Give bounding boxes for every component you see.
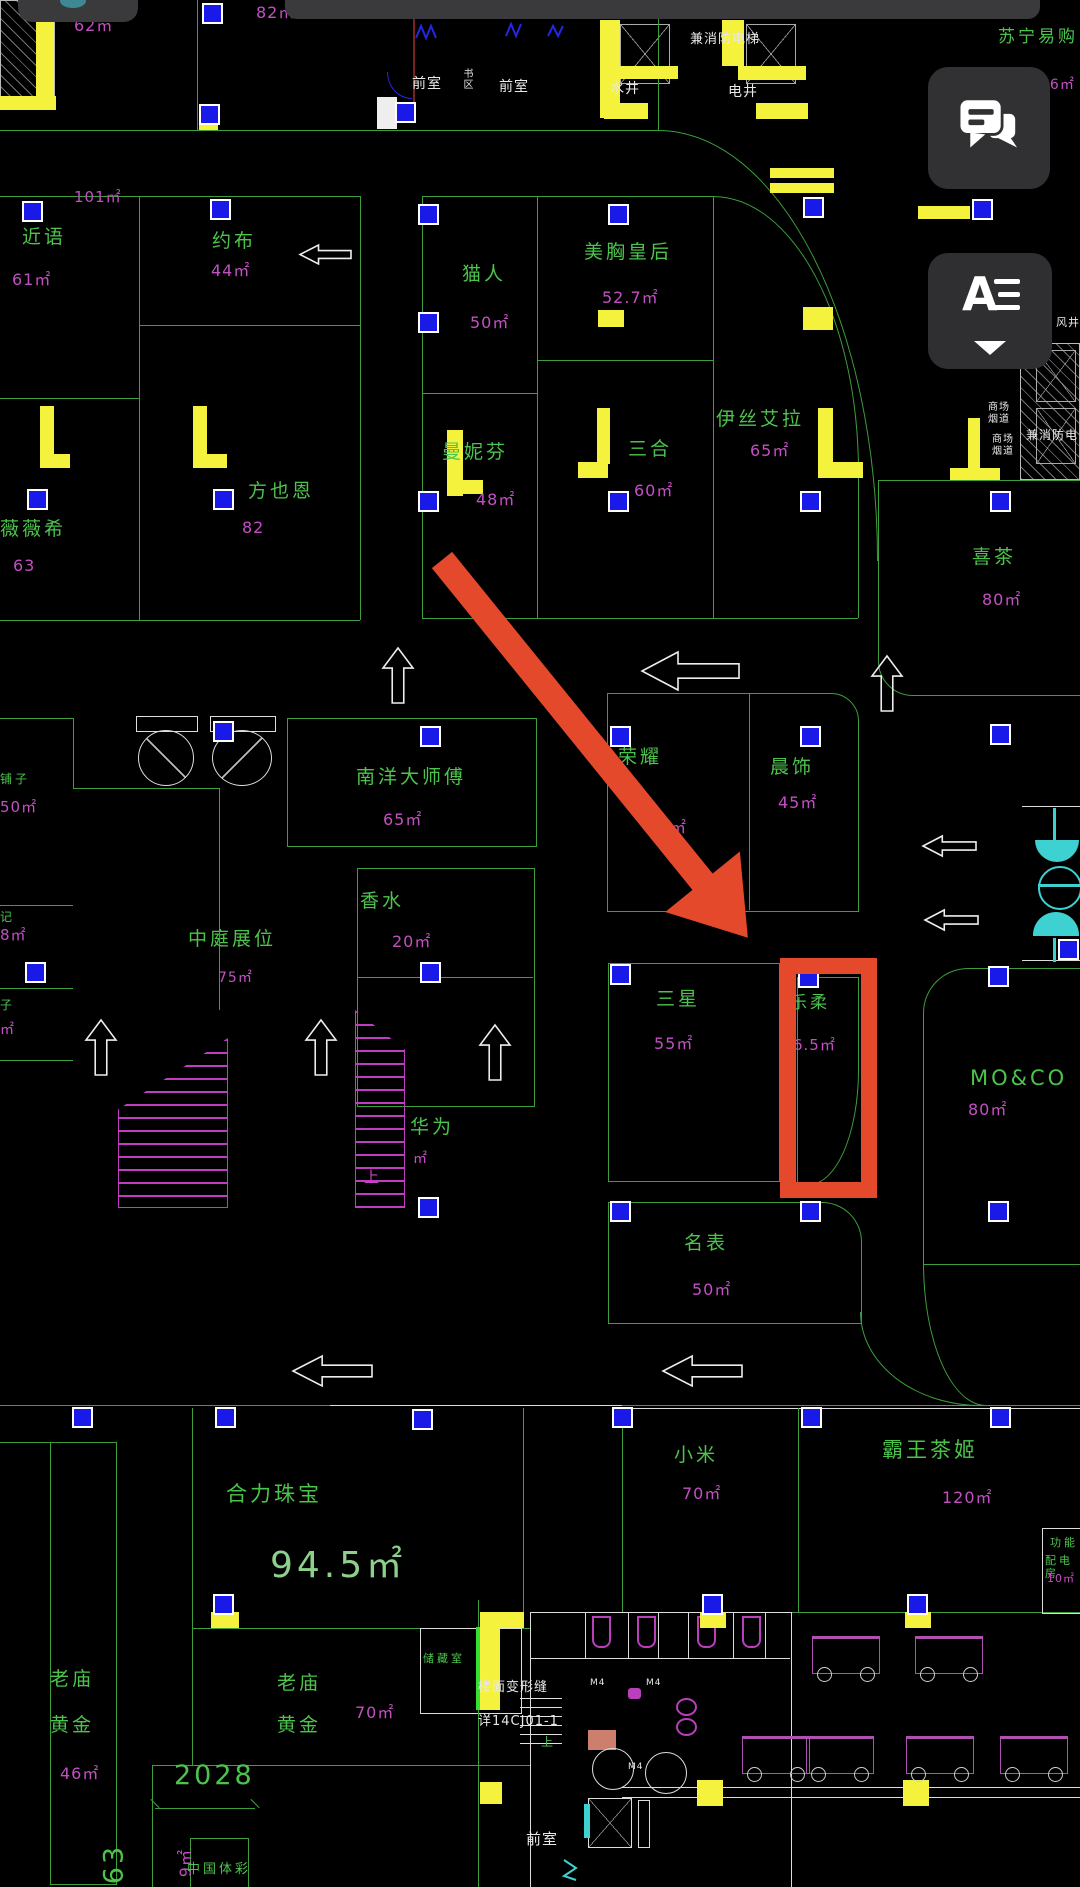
wall xyxy=(523,1408,524,1628)
column-marker xyxy=(990,724,1011,745)
caret-down-icon xyxy=(974,341,1006,355)
store-zhongting: 中庭展位 xyxy=(188,928,276,951)
up-direction-arrow-icon xyxy=(84,1018,118,1076)
revolving-door-wing xyxy=(1035,840,1079,862)
column-marker xyxy=(907,1594,928,1615)
room-front-3: 前室 xyxy=(526,1830,558,1848)
left-direction-arrow-icon xyxy=(661,1354,743,1388)
column-marker xyxy=(1058,939,1079,960)
column-marker xyxy=(988,966,1009,987)
service-elevator xyxy=(588,1798,632,1848)
wall xyxy=(357,977,533,978)
area-weiweixi: 63 xyxy=(13,556,35,575)
store-yuebu: 约布 xyxy=(212,230,256,253)
highlight-rectangle-annotation xyxy=(780,958,877,1198)
door-frame xyxy=(1022,806,1080,807)
wall xyxy=(0,718,73,719)
area-yuebu: 44㎡ xyxy=(211,261,250,280)
office-desk xyxy=(742,1736,810,1774)
column-marker xyxy=(800,491,821,512)
yellow-wall-fill xyxy=(770,183,834,193)
area-zi: ㎡ xyxy=(0,1022,15,1039)
room-front-1: 前室 xyxy=(412,76,442,93)
store-laomiao2a: 老庙 xyxy=(277,1672,321,1695)
statusbar-right xyxy=(285,0,1040,19)
note-flue-1: 商场 烟道 xyxy=(988,402,1010,426)
yellow-wall-fill xyxy=(756,103,808,119)
counter-fixture xyxy=(588,1730,616,1750)
stall-wall xyxy=(585,1612,586,1658)
structural-line xyxy=(413,14,415,112)
corridor-curve xyxy=(860,1312,981,1406)
column-marker xyxy=(612,1407,633,1428)
wall xyxy=(0,905,73,906)
office-desk xyxy=(906,1736,974,1774)
store-xicha: 喜茶 xyxy=(972,546,1016,569)
column-marker xyxy=(990,1407,1011,1428)
room-mingbiao xyxy=(608,1202,862,1324)
door-m4-1: M4 xyxy=(590,1678,606,1689)
corridor-wall xyxy=(622,1787,1080,1788)
chat-button[interactable] xyxy=(928,67,1050,189)
door-swing-arc xyxy=(387,72,412,99)
area-nanyang: 65㎡ xyxy=(383,810,422,829)
column-marker xyxy=(213,721,234,742)
column-marker xyxy=(213,1594,234,1615)
wall xyxy=(192,1628,193,1765)
left-direction-arrow-icon xyxy=(291,1354,373,1388)
column-marker xyxy=(608,491,629,512)
area-101: 101㎡ xyxy=(74,188,122,206)
area-peidianfang: 10㎡ xyxy=(1047,1572,1075,1585)
column-marker xyxy=(395,102,416,123)
note-deformation: 楼面变形缝 xyxy=(478,1680,548,1696)
corridor-wall xyxy=(622,1797,1080,1798)
note-fire-elevator-right: 兼消防电 xyxy=(1026,428,1078,442)
store-helizhubao: 合力珠宝 xyxy=(226,1482,322,1507)
store-xiaomi: 小米 xyxy=(674,1444,718,1467)
area-maoren: 50㎡ xyxy=(470,313,509,332)
column-marker xyxy=(803,197,824,218)
column-marker xyxy=(213,489,234,510)
store-laomiao2b: 黄金 xyxy=(277,1714,321,1737)
text-layer-button[interactable]: A xyxy=(928,253,1052,369)
store-moco: MO&CO xyxy=(970,1066,1067,1091)
up-direction-arrow-icon xyxy=(478,1023,512,1081)
wall xyxy=(0,1442,50,1443)
area-yisiaila: 65㎡ xyxy=(750,441,789,460)
room-front-2: 前室 xyxy=(499,79,529,96)
wall xyxy=(0,620,360,621)
office-desk xyxy=(915,1636,983,1674)
stall-wall xyxy=(628,1612,629,1658)
revolving-door-stem xyxy=(1053,938,1056,962)
store-nanyang: 南洋大师傅 xyxy=(356,766,466,789)
yellow-wall-fill xyxy=(597,408,610,464)
room-xicha xyxy=(878,480,1080,696)
door-frame xyxy=(1022,960,1080,961)
yellow-wall-fill xyxy=(818,462,863,478)
dim-463: 463 xyxy=(99,1844,131,1887)
store-huawei: 华为 xyxy=(410,1116,454,1139)
door-m4-3: M4 xyxy=(628,1762,644,1773)
store-yisiaila: 伊丝艾拉 xyxy=(716,408,804,431)
revolving-door-stem xyxy=(1053,808,1056,842)
column-marker xyxy=(27,489,48,510)
room-shuqu: 书区 xyxy=(460,68,472,90)
stall-wall xyxy=(530,1658,790,1659)
up-direction-arrow-icon xyxy=(304,1018,338,1076)
esc-up-label: 上 xyxy=(364,1168,379,1186)
room-elec-shaft: 电井 xyxy=(728,84,758,101)
store-weiweixi: 薇薇希 xyxy=(0,518,66,541)
room-fengjing: 风井 xyxy=(1056,316,1080,329)
column-marker xyxy=(610,1201,631,1222)
area-xicha: 80㎡ xyxy=(982,590,1021,609)
store-laomiao1b: 黄金 xyxy=(50,1714,94,1737)
area-xiaomi: 70㎡ xyxy=(682,1484,721,1503)
area-bawangchaji: 120㎡ xyxy=(942,1488,993,1507)
layer-lines-icon xyxy=(994,305,1020,310)
area-mingbiao: 50㎡ xyxy=(692,1280,731,1299)
zigzag-joint-icon xyxy=(562,1858,598,1882)
layer-lines-icon xyxy=(998,292,1020,297)
wall xyxy=(858,470,859,618)
wall xyxy=(422,196,713,197)
area-laomiao1: 46㎡ xyxy=(60,1764,99,1783)
area-xiangshui: 20㎡ xyxy=(392,932,431,951)
office-desk xyxy=(812,1636,880,1674)
revolving-door-wing xyxy=(1033,912,1079,936)
room-gongneng: 功能 xyxy=(1050,1536,1078,1549)
column-marker xyxy=(702,1594,723,1615)
column-marker xyxy=(215,1407,236,1428)
up-direction-arrow-icon xyxy=(381,646,415,704)
layer-lines-icon xyxy=(994,279,1020,284)
column-marker xyxy=(972,199,993,220)
wall xyxy=(422,196,423,618)
store-sanhe: 三合 xyxy=(628,438,672,461)
dimension-tick xyxy=(250,1799,259,1808)
shaft xyxy=(638,1800,650,1848)
store-laomiao1a: 老庙 xyxy=(50,1668,94,1691)
wall xyxy=(537,196,538,618)
wall xyxy=(152,1765,153,1887)
column-marker xyxy=(72,1407,93,1428)
toilet-fixture xyxy=(637,1616,656,1648)
room-cangchushi: 储藏室 xyxy=(423,1652,465,1665)
left-direction-arrow-icon xyxy=(923,908,979,932)
area-puzi-1: 50㎡ xyxy=(0,798,37,816)
column-marker xyxy=(418,491,439,512)
column-marker xyxy=(418,204,439,225)
note-detail-ref: 详14CJ01-1 xyxy=(478,1714,559,1730)
yellow-wall-fill xyxy=(193,454,227,468)
stall-wall xyxy=(765,1612,766,1658)
dimension-line xyxy=(155,1808,255,1809)
urinal-fixture xyxy=(628,1688,641,1699)
area-sanxing: 55㎡ xyxy=(654,1034,693,1053)
cad-viewer-screen: 62㎡82㎡前室书区前室水井兼消防电梯电井苏宁易购26㎡101㎡近语61㎡约布4… xyxy=(0,0,1080,1887)
wall xyxy=(192,1408,193,1628)
area-huawei: ㎡ xyxy=(413,1151,428,1168)
stall-wall xyxy=(688,1612,689,1658)
stall-wall xyxy=(733,1612,734,1658)
stairs-up-label: 上 xyxy=(541,1735,556,1749)
up-direction-arrow-icon xyxy=(870,654,904,712)
yellow-wall-fill xyxy=(738,66,806,80)
column-marker xyxy=(990,491,1011,512)
store-ji: 记 xyxy=(0,910,15,924)
door-m4-2: M4 xyxy=(646,1678,662,1689)
store-fangyeen: 方也恩 xyxy=(248,480,314,503)
left-direction-arrow-icon xyxy=(298,243,352,266)
cyan-panel xyxy=(584,1804,590,1838)
column-marker xyxy=(800,1201,821,1222)
yellow-wall-fill xyxy=(803,307,833,330)
basin-fixture xyxy=(676,1698,697,1716)
floorplan-canvas[interactable]: 62㎡82㎡前室书区前室水井兼消防电梯电井苏宁易购26㎡101㎡近语61㎡约布4… xyxy=(0,0,1080,1887)
office-desk xyxy=(1000,1736,1068,1774)
yellow-wall-fill xyxy=(697,1780,723,1806)
wall xyxy=(330,1405,622,1406)
column-marker xyxy=(801,1407,822,1428)
toilet-fixture xyxy=(742,1616,761,1648)
column-marker xyxy=(420,962,441,983)
store-mannifen: 曼妮芬 xyxy=(442,441,508,464)
wall xyxy=(139,325,360,326)
zigzag-spring-icon xyxy=(548,24,566,40)
dim-2028: 2028 xyxy=(174,1760,255,1792)
office-desk xyxy=(806,1736,874,1774)
column-marker xyxy=(25,962,46,983)
yellow-wall-fill xyxy=(604,103,648,119)
yellow-wall-fill xyxy=(480,1782,502,1804)
wall xyxy=(0,398,139,399)
wall xyxy=(73,788,219,789)
column-marker xyxy=(210,199,231,220)
area-jinyu: 61㎡ xyxy=(12,270,51,289)
area-laomiao2: 70㎡ xyxy=(355,1703,394,1722)
yellow-wall-fill xyxy=(578,462,608,478)
yellow-wall-fill xyxy=(950,468,1000,480)
store-zi: 子 xyxy=(0,998,15,1012)
wall xyxy=(0,130,658,131)
note-fire-elevator-top: 兼消防电梯 xyxy=(690,32,760,48)
yellow-wall-fill xyxy=(40,454,70,468)
area-ji: 8㎡ xyxy=(0,926,27,944)
column-marker xyxy=(202,3,223,24)
zigzag-spring-icon xyxy=(506,22,526,40)
yellow-wall-fill xyxy=(600,66,678,79)
wall xyxy=(798,1408,799,1612)
area-chenshi: 45㎡ xyxy=(778,793,817,812)
wall xyxy=(197,0,198,130)
door-panel xyxy=(377,97,397,129)
wall xyxy=(0,1060,73,1061)
column-marker xyxy=(988,1201,1009,1222)
store-sanxing: 三星 xyxy=(656,988,700,1011)
left-direction-arrow-icon xyxy=(640,650,740,692)
left-direction-arrow-icon xyxy=(921,834,977,858)
room-storage xyxy=(420,1628,522,1714)
note-flue-2: 商场 烟道 xyxy=(992,434,1014,458)
store-jinyu: 近语 xyxy=(22,226,66,249)
column-marker xyxy=(412,1409,433,1430)
column-marker xyxy=(418,1197,439,1218)
room-water-shaft: 水井 xyxy=(610,81,640,98)
column-marker xyxy=(199,104,220,125)
area-sanhe: 60㎡ xyxy=(634,481,673,500)
yellow-wall-fill xyxy=(918,206,970,219)
store-xiangshui: 香水 xyxy=(360,890,404,913)
column-marker xyxy=(800,726,821,747)
column-marker xyxy=(418,312,439,333)
wall xyxy=(73,718,74,788)
store-maoren: 猫人 xyxy=(462,263,506,286)
revolving-door-ring xyxy=(1038,866,1080,910)
store-mingbiao: 名表 xyxy=(684,1232,728,1255)
yellow-wall-fill xyxy=(903,1780,929,1806)
store-ticai: 中国体彩 xyxy=(187,1862,251,1878)
wall xyxy=(360,196,361,620)
store-suning: 苏宁易购 xyxy=(998,27,1078,47)
wall xyxy=(0,196,360,197)
area-moco: 80㎡ xyxy=(968,1100,1007,1119)
zigzag-spring-icon xyxy=(416,24,440,42)
wall xyxy=(139,196,140,620)
area-zhongting: 75㎡ xyxy=(218,970,253,987)
basin-fixture xyxy=(676,1718,697,1736)
round-elevator xyxy=(138,730,194,786)
camera-cutout xyxy=(60,0,86,8)
statusbar-left xyxy=(18,0,138,22)
column-marker xyxy=(610,964,631,985)
area-meixiong: 52.7㎡ xyxy=(602,288,659,307)
area-fangyeen: 82 xyxy=(242,518,264,537)
area-helizhubao: 94.5㎡ xyxy=(270,1544,406,1587)
column-marker xyxy=(420,726,441,747)
text-layer-letter: A xyxy=(962,267,998,321)
yellow-wall-fill xyxy=(770,168,834,178)
wall xyxy=(537,360,713,361)
column-marker xyxy=(610,726,631,747)
store-chenshi: 晨饰 xyxy=(770,756,814,779)
column-marker xyxy=(608,204,629,225)
store-bawangchaji: 霸王茶姬 xyxy=(882,1438,978,1463)
wall xyxy=(622,1408,623,1612)
room-laomiao-1 xyxy=(50,1442,117,1885)
wall xyxy=(622,1408,1080,1409)
yellow-wall-fill xyxy=(598,310,624,327)
stall-wall xyxy=(658,1612,659,1658)
chat-bubbles-icon xyxy=(957,97,1021,155)
store-meixiong: 美胸皇后 xyxy=(584,241,672,264)
wall xyxy=(713,196,714,618)
wall xyxy=(658,0,659,130)
escalator xyxy=(118,1038,228,1208)
area-mannifen: 48㎡ xyxy=(476,490,515,509)
wall xyxy=(0,988,73,989)
column-marker xyxy=(22,201,43,222)
toilet-fixture xyxy=(592,1616,611,1648)
wall xyxy=(422,393,537,394)
yellow-wall-fill xyxy=(0,96,56,110)
store-puzi-1: 铺子 xyxy=(0,772,30,786)
revolving-door-bar xyxy=(1038,884,1080,887)
